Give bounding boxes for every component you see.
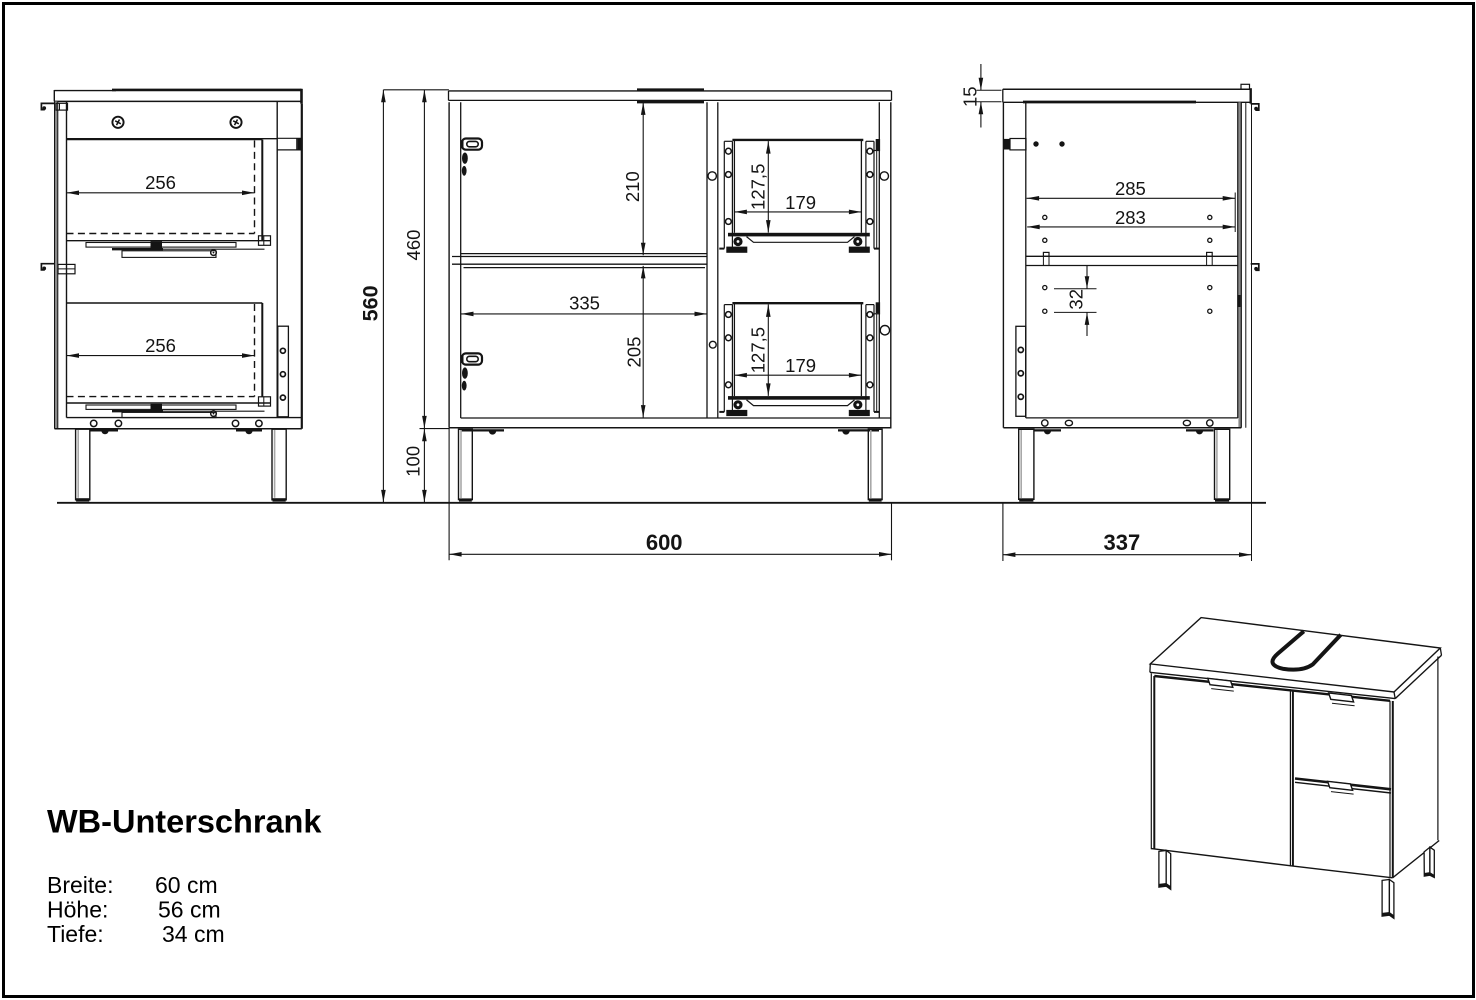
- svg-text:460: 460: [403, 230, 424, 261]
- svg-text:32: 32: [1066, 289, 1087, 310]
- svg-text:127,5: 127,5: [748, 164, 769, 210]
- svg-text:127,5: 127,5: [748, 327, 769, 373]
- svg-text:34 cm: 34 cm: [162, 921, 225, 947]
- svg-text:337: 337: [1104, 530, 1141, 555]
- svg-text:335: 335: [569, 293, 600, 314]
- svg-text:Tiefe:: Tiefe:: [47, 921, 104, 947]
- svg-text:205: 205: [623, 337, 644, 368]
- svg-text:256: 256: [145, 335, 176, 356]
- svg-text:283: 283: [1115, 207, 1146, 228]
- svg-text:100: 100: [403, 446, 424, 477]
- svg-text:179: 179: [785, 355, 816, 376]
- svg-text:15: 15: [960, 86, 981, 107]
- svg-text:56 cm: 56 cm: [158, 896, 221, 922]
- svg-text:Breite:: Breite:: [47, 872, 113, 898]
- svg-text:600: 600: [646, 530, 683, 555]
- svg-text:285: 285: [1115, 178, 1146, 199]
- svg-text:210: 210: [622, 171, 643, 202]
- svg-text:256: 256: [145, 172, 176, 193]
- svg-text:WB-Unterschrank: WB-Unterschrank: [47, 804, 322, 840]
- svg-text:Höhe:: Höhe:: [47, 896, 108, 922]
- svg-text:60 cm: 60 cm: [155, 872, 218, 898]
- svg-text:179: 179: [785, 192, 816, 213]
- svg-text:560: 560: [359, 285, 383, 321]
